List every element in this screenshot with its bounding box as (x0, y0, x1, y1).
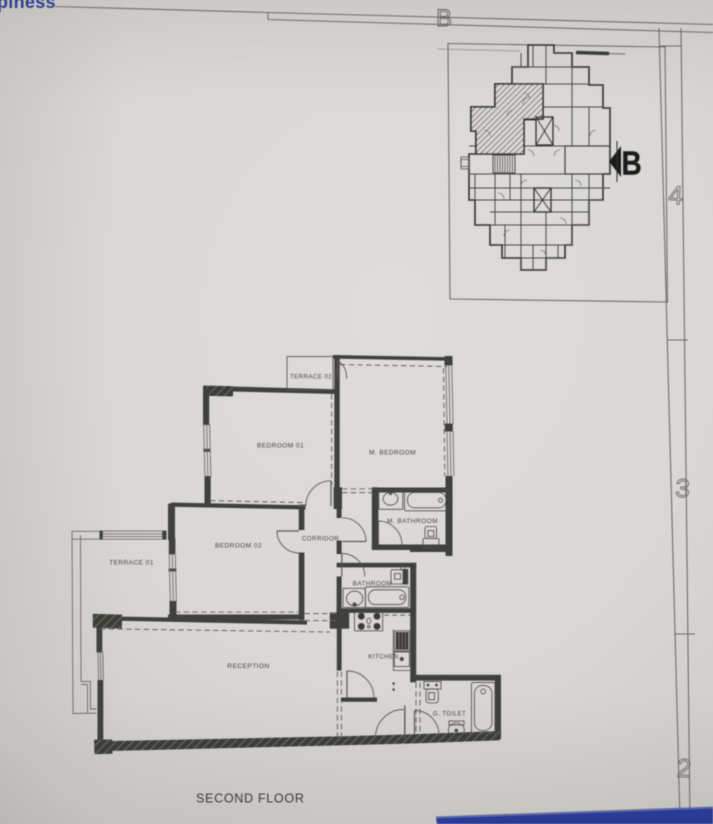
svg-text:SECOND FLOOR: SECOND FLOOR (196, 792, 305, 806)
svg-text:M. BATHROOM: M. BATHROOM (387, 518, 438, 525)
svg-text:RECEPTION: RECEPTION (227, 663, 270, 670)
svg-text:CORRIDOR: CORRIDOR (302, 536, 339, 543)
svg-text:TERRACE 01: TERRACE 01 (109, 560, 154, 567)
svg-text:BEDROOM 02: BEDROOM 02 (215, 543, 262, 550)
svg-text:4: 4 (668, 180, 684, 211)
svg-text:3: 3 (675, 473, 691, 504)
svg-text:piness: piness (0, 0, 56, 12)
svg-text:G. TOILET: G. TOILET (433, 711, 466, 718)
svg-text:BATHROOM: BATHROOM (353, 581, 393, 588)
svg-text:KITCHEN: KITCHEN (368, 654, 398, 661)
svg-text:M. BEDROOM: M. BEDROOM (369, 450, 416, 457)
svg-text:B: B (622, 145, 642, 182)
svg-text:BEDROOM 01: BEDROOM 01 (257, 443, 304, 450)
svg-text:B: B (436, 5, 452, 32)
svg-text:2: 2 (676, 753, 692, 784)
svg-text:TERRACE 02: TERRACE 02 (290, 374, 332, 381)
